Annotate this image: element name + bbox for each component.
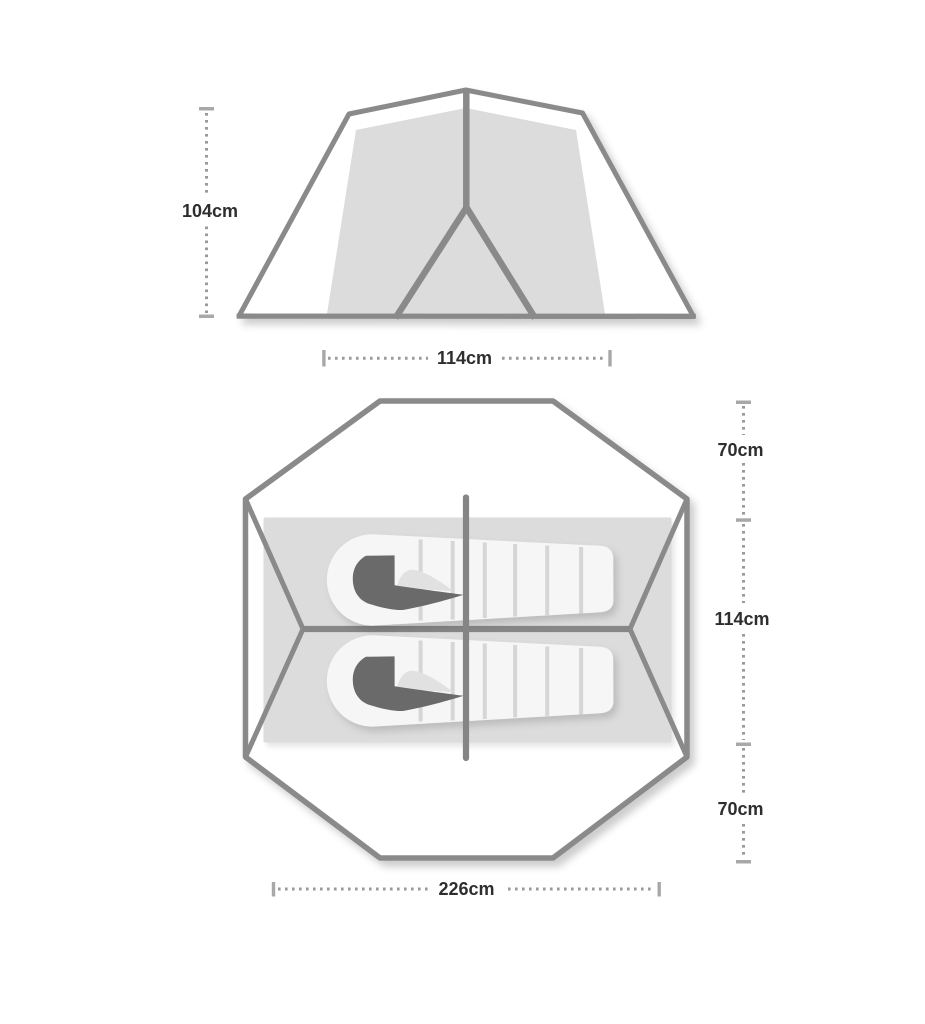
svg-text:226cm: 226cm xyxy=(438,879,494,899)
svg-text:70cm: 70cm xyxy=(717,799,763,819)
svg-text:104cm: 104cm xyxy=(182,201,238,221)
svg-text:70cm: 70cm xyxy=(717,440,763,460)
svg-text:114cm: 114cm xyxy=(437,348,492,368)
svg-text:114cm: 114cm xyxy=(714,609,769,629)
